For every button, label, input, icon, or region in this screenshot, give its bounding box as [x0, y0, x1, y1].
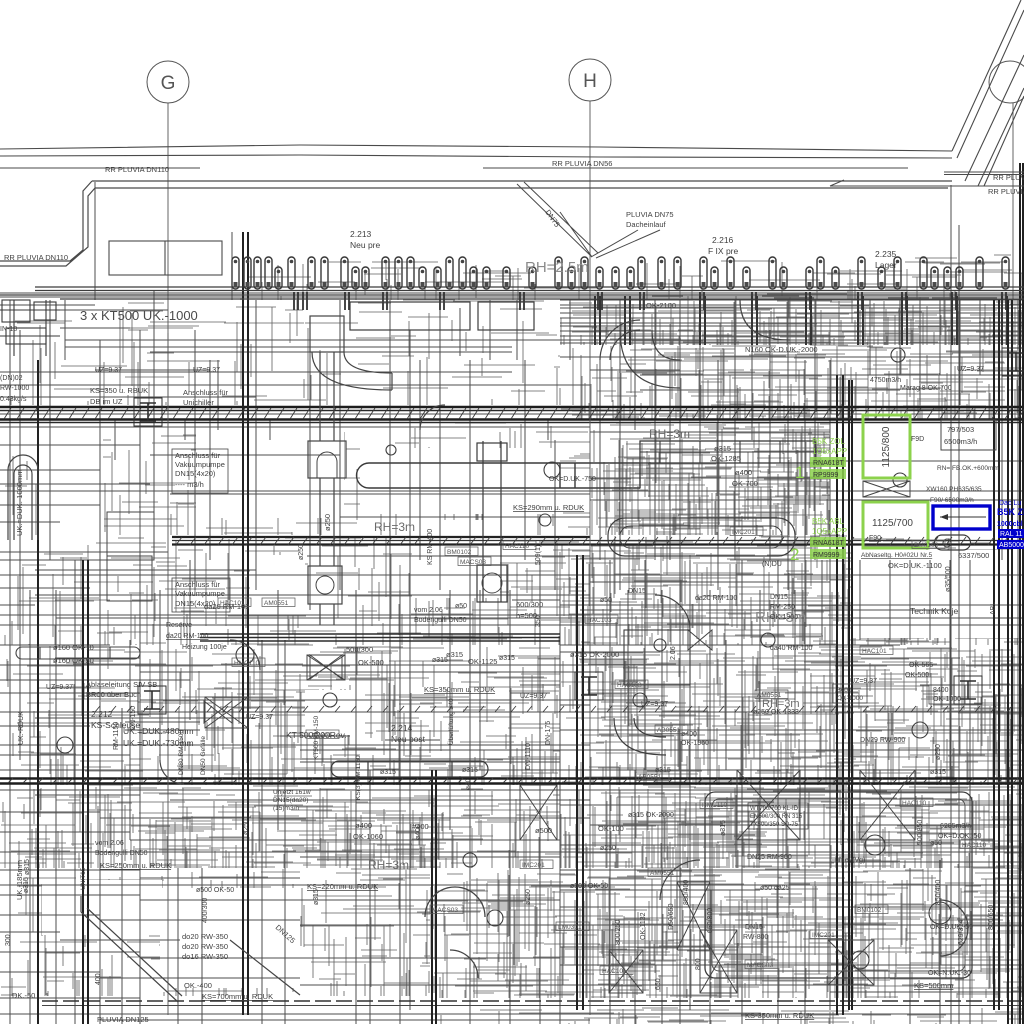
svg-text:RH=3m: RH=3m: [649, 427, 690, 441]
svg-text:DN-1110: DN-1110: [525, 743, 532, 770]
svg-text:RM9999: RM9999: [813, 552, 840, 559]
svg-text:RP9999: RP9999: [813, 472, 838, 479]
svg-text:Ablaseleitung SIV SB: Ablaseleitung SIV SB: [86, 680, 157, 689]
svg-text:DN15(da20): DN15(da20): [273, 797, 308, 804]
svg-text:Heizung 100je: Heizung 100je: [182, 644, 227, 651]
svg-text:(DN)02: (DN)02: [0, 375, 23, 382]
svg-text:da20 RM-100: da20 RM-100: [166, 633, 209, 640]
svg-text:AbNaseltg. H0#02U Nr.5: AbNaseltg. H0#02U Nr.5: [861, 552, 933, 559]
svg-text:KS=290mm u. RDUK: KS=290mm u. RDUK: [513, 503, 584, 512]
svg-text:500/300: 500/300: [346, 645, 373, 654]
svg-text:OK=D.UK.-1100: OK=D.UK.-1100: [888, 561, 942, 570]
svg-text:BM0102: BM0102: [914, 542, 939, 549]
svg-text:DN15(4x20): DN15(4x20): [175, 469, 216, 478]
svg-text:OK-2100: OK-2100: [646, 301, 676, 310]
svg-text:UZ=9.37: UZ=9.37: [95, 367, 122, 374]
svg-text:RH=3m: RH=3m: [368, 858, 409, 872]
svg-text:ø500: ø500: [535, 826, 552, 835]
svg-text:RW-800: RW-800: [743, 934, 769, 941]
svg-text:BR00 über Buch: BR00 über Buch: [86, 690, 141, 699]
svg-text:da20 RM-100: da20 RM-100: [695, 595, 738, 602]
svg-text:Bodengulli DN50: Bodengulli DN50: [95, 850, 148, 857]
svg-text:do16 RW-350: do16 RW-350: [182, 952, 228, 961]
svg-text:RW-1000: RW-1000: [0, 385, 29, 392]
svg-text:OK=N.UK.-30: OK=N.UK.-30: [928, 970, 971, 977]
svg-text:1Q5xAPP: 1Q5xAPP: [812, 447, 847, 456]
svg-text:400/300: 400/300: [202, 898, 209, 923]
svg-text:DN-150: DN-150: [130, 706, 137, 730]
svg-text:DN15: DN15: [628, 588, 646, 595]
svg-text:UZ=9.37: UZ=9.37: [520, 693, 547, 700]
svg-text:KS(3) RM-1150: KS(3) RM-1150: [355, 755, 362, 800]
svg-text:629/314: 629/314: [958, 920, 965, 945]
svg-text:2.213: 2.213: [350, 229, 372, 239]
svg-text:1: 1: [795, 463, 804, 482]
svg-text:HAC110: HAC110: [505, 543, 529, 550]
svg-text:ø50 da25: ø50 da25: [760, 885, 790, 892]
svg-text:RR PLUVIA DN56: RR PLUVIA DN56: [552, 159, 612, 168]
svg-text:ø250: ø250: [243, 819, 250, 835]
svg-text:B5K ZOL: B5K ZOL: [812, 437, 845, 446]
svg-text:MACS03: MACS03: [432, 907, 458, 914]
svg-text:ø250 OK-1333: ø250 OK-1333: [753, 709, 799, 716]
svg-text:XW160 PH635/635: XW160 PH635/635: [926, 486, 982, 493]
svg-text:800/250: 800/250: [615, 920, 622, 945]
svg-text:G: G: [161, 73, 176, 94]
svg-text:H: H: [583, 71, 597, 92]
svg-text:DN15: DN15: [770, 594, 788, 601]
svg-text:RNA618T: RNA618T: [813, 540, 844, 547]
svg-text:PLUVIA DN125: PLUVIA DN125: [97, 1015, 149, 1024]
svg-text:HAC103: HAC103: [617, 682, 642, 689]
svg-text:UZ=9.37: UZ=9.37: [246, 714, 273, 721]
svg-text:B5K ZD: B5K ZD: [997, 507, 1024, 517]
svg-text:2: 2: [790, 545, 799, 564]
svg-text:UZ=9.37: UZ=9.37: [193, 367, 220, 374]
svg-text:HAC101: HAC101: [862, 648, 887, 655]
svg-text:UZ=9.37: UZ=9.37: [957, 366, 984, 373]
svg-text:6337/500: 6337/500: [958, 551, 989, 560]
svg-text:h=500: h=500: [516, 611, 537, 620]
svg-text:ø160 OK-70: ø160 OK-70: [53, 643, 94, 652]
svg-text:OK-566: OK-566: [909, 662, 933, 669]
svg-text:WT700/700 KL-ID: WT700/700 KL-ID: [750, 806, 799, 812]
svg-text:ø315: ø315: [499, 655, 515, 662]
svg-text:Vakuumpumpe: Vakuumpumpe: [175, 460, 225, 469]
svg-text:DN50 Gefälle: DN50 Gefälle: [200, 736, 207, 775]
svg-text:Überlüftung ø40: Überlüftung ø40: [447, 698, 455, 745]
svg-text:AB0551: AB0551: [638, 774, 662, 781]
svg-text:UK.-RDUK: UK.-RDUK: [18, 711, 25, 745]
svg-text:DN-175: DN-175: [545, 721, 552, 745]
svg-text:MACS03: MACS03: [460, 559, 486, 566]
svg-text:KS=700mm u. RDUK: KS=700mm u. RDUK: [202, 992, 273, 1001]
svg-text:850/400: 850/400: [935, 880, 942, 905]
svg-text:---- m3/h: ---- m3/h: [175, 480, 204, 489]
svg-text:OK-1285: OK-1285: [711, 454, 741, 463]
svg-text:DN80 RM-1500: DN80 RM-1500: [178, 729, 185, 775]
svg-text:Bodengulli DN50: Bodengulli DN50: [414, 617, 467, 624]
svg-text:ø50: ø50: [600, 597, 612, 604]
svg-text:ø250: ø250: [935, 744, 942, 760]
svg-text:MACS03: MACS03: [747, 962, 773, 969]
svg-text:8400: 8400: [933, 687, 949, 694]
svg-text:6285m3/h: 6285m3/h: [940, 823, 971, 830]
svg-text:HAC110: HAC110: [962, 842, 986, 849]
svg-text:ø315: ø315: [714, 444, 731, 453]
svg-text:2.06: 2.06: [670, 646, 677, 660]
svg-text:OK=D.UK.-750: OK=D.UK.-750: [549, 476, 596, 483]
svg-text:ø315 OK-2000: ø315 OK-2000: [570, 650, 619, 659]
svg-text:Anschluss für: Anschluss für: [175, 580, 221, 589]
svg-text:Dac Lu: Dac Lu: [999, 500, 1021, 507]
svg-text:ø315 OK-2000: ø315 OK-2000: [628, 812, 674, 819]
svg-text:Technik Koje: Technik Koje: [910, 606, 958, 616]
svg-text:Anschluss für: Anschluss für: [183, 388, 229, 397]
svg-text:ø160 OK-50: ø160 OK-50: [53, 656, 94, 665]
svg-text:800/650: 800/650: [988, 905, 995, 930]
svg-text:797/503: 797/503: [947, 425, 974, 434]
svg-text:ø40: ø40: [465, 778, 472, 790]
svg-text:ø400: ø400: [355, 821, 372, 830]
svg-text:Neu pre: Neu pre: [350, 240, 381, 250]
svg-text:HAC103: HAC103: [587, 617, 612, 624]
svg-text:Unichiller: Unichiller: [183, 398, 214, 407]
svg-text:OK-1900: OK-1900: [770, 614, 798, 621]
svg-text:OK-1960: OK-1960: [681, 740, 709, 747]
svg-text:DN25 RM-900: DN25 RM-900: [747, 854, 792, 861]
svg-text:OK-1000: OK-1000: [837, 695, 863, 702]
svg-text:350: 350: [535, 615, 542, 627]
svg-text:DN15: DN15: [745, 924, 763, 931]
svg-text:OK=D.OK.-50: OK=D.OK.-50: [938, 833, 981, 840]
svg-text:KS=350mm u. RDUK: KS=350mm u. RDUK: [424, 685, 495, 694]
svg-text:ø315: ø315: [930, 769, 946, 776]
svg-text:ø250: ø250: [298, 544, 305, 560]
svg-text:da40 RM-100: da40 RM-100: [770, 645, 813, 652]
svg-text:EN500/300 RN 315: EN500/300 RN 315: [750, 814, 803, 820]
svg-text:HAC101: HAC101: [220, 600, 245, 607]
svg-text:(N)DU: (N)DU: [762, 561, 782, 568]
svg-text:(15)m3/h: (15)m3/h: [273, 805, 299, 812]
svg-text:6500m3/h: 6500m3/h: [944, 437, 977, 446]
svg-text:HMC110: HMC110: [702, 802, 728, 809]
svg-text:0.43kg/s: 0.43kg/s: [0, 396, 27, 403]
svg-text:1125/800: 1125/800: [881, 426, 892, 467]
svg-text:650/800: 650/800: [707, 908, 714, 933]
svg-text:1125/700: 1125/700: [872, 518, 913, 529]
svg-text:B5K ABL: B5K ABL: [812, 517, 845, 526]
svg-text:AB0551: AB0551: [657, 727, 681, 734]
svg-text:DK.-50: DK.-50: [12, 991, 35, 1000]
svg-text:ø250: ø250: [525, 889, 532, 905]
svg-text:IMC201: IMC201: [812, 932, 835, 939]
svg-text:2.212: 2.212: [91, 709, 113, 719]
svg-text:LM0301: LM0301: [558, 924, 582, 931]
svg-text:IMC201: IMC201: [522, 862, 545, 869]
svg-text:ø400: ø400: [735, 468, 752, 477]
svg-text:DB im UZ: DB im UZ: [90, 397, 123, 406]
svg-text:OK-1060: OK-1060: [353, 832, 383, 841]
svg-text:DN29 RW-900: DN29 RW-900: [860, 737, 905, 744]
svg-text:RM-1150: RM-1150: [113, 722, 120, 750]
svg-text:PLUVIA DN75: PLUVIA DN75: [626, 210, 674, 219]
svg-text:800: 800: [695, 958, 702, 970]
svg-text:do20 RW-350: do20 RW-350: [182, 932, 228, 941]
svg-text:2.214: 2.214: [391, 723, 413, 733]
svg-text:OK-1000: OK-1000: [933, 696, 961, 703]
svg-text:KS=250mm u. RDUK: KS=250mm u. RDUK: [100, 861, 171, 870]
svg-text:Unjetzt 161w: Unjetzt 161w: [273, 789, 311, 796]
svg-text:OK.-400: OK.-400: [184, 981, 212, 990]
svg-text:RR PLUVIA DN110: RR PLUVIA DN110: [4, 253, 68, 262]
svg-text:OK=D.UK.-50: OK=D.UK.-50: [930, 924, 973, 931]
svg-text:KS=500mm: KS=500mm: [914, 981, 953, 990]
svg-text:1Q5xAPP: 1Q5xAPP: [812, 527, 847, 536]
svg-text:UZ=9.37: UZ=9.37: [641, 701, 668, 708]
svg-text:Neu post: Neu post: [391, 734, 426, 744]
svg-text:TX500/350 SD-75: TX500/350 SD-75: [750, 822, 799, 828]
svg-text:IMC201: IMC201: [732, 529, 755, 536]
svg-text:AM0551: AM0551: [757, 692, 782, 699]
svg-text:BM0102: BM0102: [447, 549, 472, 556]
svg-text:300: 300: [5, 934, 12, 946]
svg-text:BM0102: BM0102: [857, 907, 882, 914]
svg-text:2.235: 2.235: [875, 249, 897, 259]
svg-text:RN= FB.OK.+600mm: RN= FB.OK.+600mm: [937, 465, 999, 472]
svg-text:KS-350mm u. RDUK: KS-350mm u. RDUK: [745, 1011, 814, 1020]
svg-text:ø500 OK-50: ø500 OK-50: [196, 887, 234, 894]
svg-text:ø315: ø315: [23, 877, 30, 893]
svg-text:1000cbl: 1000cbl: [997, 521, 1023, 528]
svg-text:F90/ 6500m3/h: F90/ 6500m3/h: [930, 497, 974, 504]
svg-text:vom 2.06: vom 2.06: [95, 840, 124, 847]
svg-text:F9D: F9D: [911, 436, 924, 443]
svg-text:Lager: Lager: [875, 260, 897, 270]
svg-text:HMC110: HMC110: [234, 660, 260, 667]
svg-text:Dacheinlauf: Dacheinlauf: [626, 220, 667, 229]
svg-text:OK-500: OK-500: [905, 672, 929, 679]
svg-text:ø400: ø400: [415, 824, 422, 840]
svg-text:KS RM-400: KS RM-400: [427, 529, 434, 565]
svg-text:UNIT15: UNIT15: [80, 867, 87, 890]
svg-text:UZ=9.37: UZ=9.37: [46, 684, 73, 691]
svg-text:IN-18: IN-18: [0, 326, 17, 333]
svg-text:ø250: ø250: [323, 514, 332, 531]
svg-text:ø400: ø400: [681, 731, 697, 738]
svg-text:RR PLUVIA: RR PLUVIA: [988, 187, 1024, 196]
svg-text:Anschluss für: Anschluss für: [175, 451, 221, 460]
svg-text:ø35/500: ø35/500: [945, 566, 952, 592]
svg-text:ø315: ø315: [462, 767, 478, 774]
svg-text:ø315: ø315: [432, 657, 448, 664]
svg-text:RH=2.5m: RH=2.5m: [525, 259, 589, 276]
svg-text:RH=3m: RH=3m: [374, 520, 415, 534]
svg-text:do20 RW-350: do20 RW-350: [182, 942, 228, 951]
svg-text:F IX pre: F IX pre: [708, 246, 739, 256]
svg-text:ø50: ø50: [455, 603, 467, 610]
svg-text:Marag 8 OK-700: Marag 8 OK-700: [900, 385, 952, 392]
svg-text:ø500 OK-50: ø500 OK-50: [570, 883, 608, 890]
svg-text:vom 2.06: vom 2.06: [414, 607, 443, 614]
svg-text:500/850: 500/850: [917, 820, 924, 845]
svg-text:untey(Vg): untey(Vg): [835, 857, 865, 864]
svg-text:LM0301: LM0301: [308, 732, 332, 739]
svg-text:HAC110: HAC110: [902, 800, 926, 807]
svg-text:RM-250: RM-250: [770, 604, 795, 611]
svg-text:OK-1125: OK-1125: [468, 657, 497, 666]
svg-text:OK-500: OK-500: [358, 658, 384, 667]
svg-text:AB5000: AB5000: [999, 542, 1024, 549]
svg-text:8400: 8400: [837, 687, 852, 694]
svg-text:ø315: ø315: [380, 769, 396, 776]
svg-text:ø315: ø315: [313, 889, 320, 905]
svg-text:F90: F90: [869, 535, 881, 542]
svg-text:RNA618T: RNA618T: [813, 460, 844, 467]
svg-text:3 x KT500 UK.-1000: 3 x KT500 UK.-1000: [80, 308, 198, 323]
svg-text:D50/650: D50/650: [668, 903, 675, 930]
svg-text:KS=350 u. RBUK: KS=350 u. RBUK: [90, 386, 148, 395]
svg-text:ø315: ø315: [446, 650, 463, 659]
svg-text:600/300: 600/300: [516, 600, 543, 609]
svg-text:ø315: ø315: [720, 820, 727, 836]
svg-text:850/400: 850/400: [683, 880, 690, 905]
svg-text:RR PLUV: RR PLUV: [993, 173, 1024, 182]
svg-text:400: 400: [95, 973, 102, 985]
svg-text:RAL 11: RAL 11: [1000, 531, 1023, 538]
svg-text:ø50: ø50: [930, 840, 942, 847]
svg-text:OK-100: OK-100: [598, 824, 624, 833]
svg-text:Reserve: Reserve: [166, 622, 192, 629]
svg-text:AM0551: AM0551: [650, 870, 675, 877]
svg-text:HAC101: HAC101: [602, 968, 627, 975]
svg-text:2.216: 2.216: [712, 235, 734, 245]
svg-text:AM0551: AM0551: [264, 600, 289, 607]
svg-text:N160 OK-D.UK.-2000: N160 OK-D.UK.-2000: [745, 345, 818, 354]
svg-text:RR PLUVIA DN110: RR PLUVIA DN110: [105, 165, 169, 174]
svg-text:ø315: ø315: [24, 859, 31, 875]
svg-text:4750m3/h: 4750m3/h: [870, 377, 901, 384]
svg-text:UK.=DUK.-1000mm: UK.=DUK.-1000mm: [15, 470, 24, 536]
svg-text:650: 650: [655, 978, 662, 990]
svg-text:OK-1132: OK-1132: [640, 912, 647, 940]
svg-text:ø250: ø250: [600, 845, 616, 852]
svg-text:OK-700: OK-700: [732, 479, 758, 488]
svg-text:Vakuumpumpe: Vakuumpumpe: [175, 589, 225, 598]
svg-text:ABL: ABL: [990, 602, 997, 615]
